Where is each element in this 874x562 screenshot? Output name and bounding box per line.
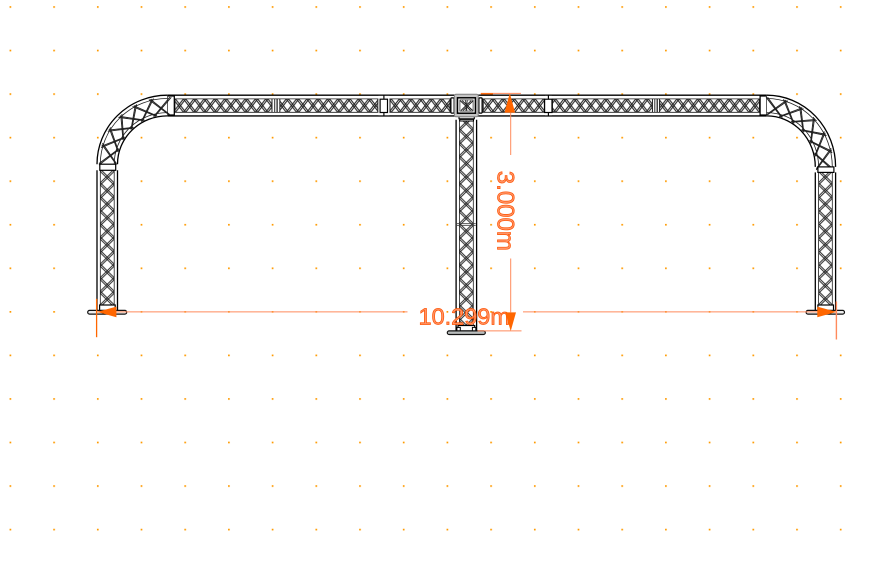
svg-text:3.000m: 3.000m <box>492 171 519 251</box>
svg-text:10.299m: 10.299m <box>419 303 510 329</box>
